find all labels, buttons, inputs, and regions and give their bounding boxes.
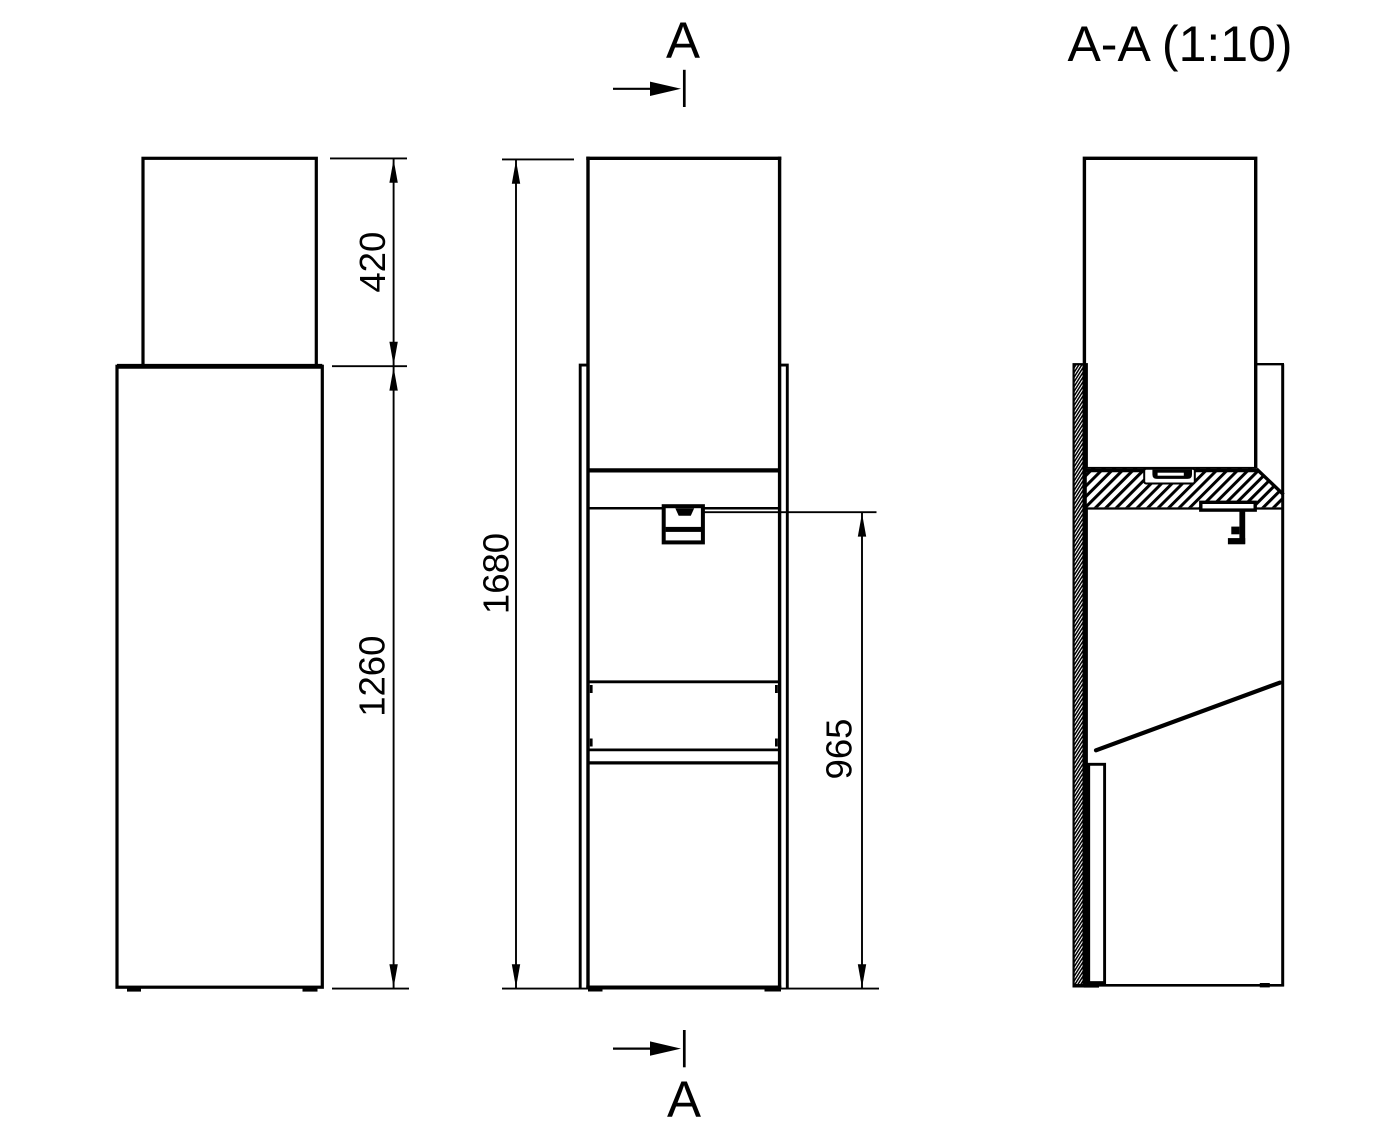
svg-text:1260: 1260 bbox=[352, 636, 393, 717]
svg-text:1680: 1680 bbox=[476, 533, 517, 614]
svg-text:A: A bbox=[667, 1071, 701, 1128]
svg-text:965: 965 bbox=[819, 719, 860, 780]
svg-text:420: 420 bbox=[352, 232, 393, 293]
svg-text:A: A bbox=[666, 12, 700, 69]
svg-text:A-A (1:10): A-A (1:10) bbox=[1067, 16, 1292, 72]
